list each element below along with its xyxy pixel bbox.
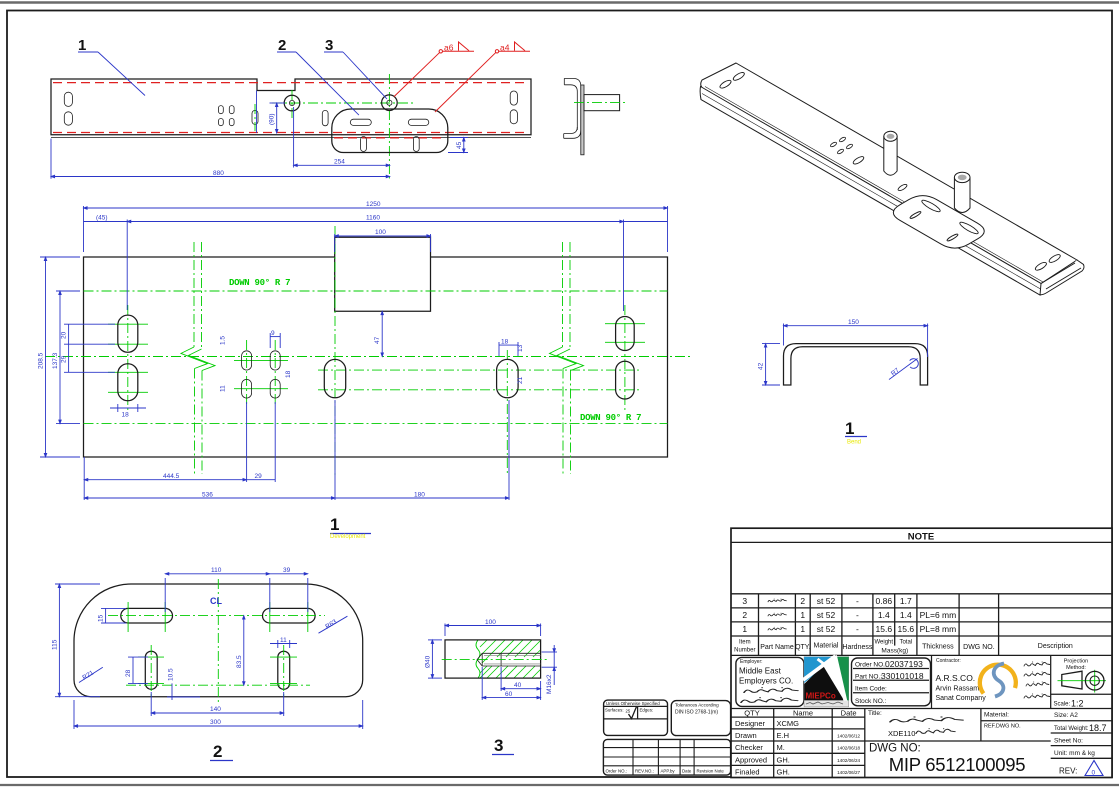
svg-text:110: 110 (211, 567, 222, 574)
svg-text:Order NO.:: Order NO.: (606, 769, 627, 774)
svg-text:536: 536 (202, 491, 213, 498)
svg-text:(90): (90) (269, 113, 276, 125)
svg-text:Unit: mm & kg: Unit: mm & kg (1054, 750, 1095, 757)
svg-text:Revision Note: Revision Note (697, 769, 725, 774)
svg-text:REV.NO.:: REV.NO.: (635, 769, 654, 774)
svg-text:1402/06/27: 1402/06/27 (837, 770, 860, 775)
svg-text:XDE110: XDE110 (888, 729, 915, 738)
svg-text:Hardness: Hardness (842, 644, 872, 651)
svg-text:Name: Name (793, 709, 813, 718)
svg-text:2: 2 (742, 610, 747, 620)
svg-text:115: 115 (51, 639, 58, 650)
svg-text:18: 18 (122, 412, 130, 419)
svg-text:1160: 1160 (366, 215, 380, 222)
svg-text:Number: Number (734, 648, 755, 654)
svg-text:Designer: Designer (735, 719, 766, 728)
svg-text:1250: 1250 (366, 201, 381, 208)
svg-text:a6: a6 (444, 43, 454, 53)
svg-text:100: 100 (485, 619, 496, 626)
svg-text:PL=8 mm: PL=8 mm (920, 624, 957, 634)
svg-text:28: 28 (125, 669, 132, 677)
svg-text:150: 150 (848, 319, 859, 326)
svg-text:18: 18 (285, 370, 292, 378)
svg-text:3: 3 (742, 596, 747, 606)
svg-text:13: 13 (517, 344, 524, 352)
svg-text:Total: Total (899, 640, 912, 646)
svg-text:Unless Otherwise Specified: Unless Otherwise Specified (606, 701, 660, 706)
svg-text:1: 1 (800, 624, 805, 634)
svg-text:-: - (856, 624, 859, 634)
svg-text:254: 254 (334, 159, 345, 166)
svg-text:Description: Description (1038, 643, 1073, 650)
svg-text:Order NO.:: Order NO.: (855, 662, 887, 669)
svg-text:Finaled: Finaled (735, 767, 760, 776)
svg-text:DOWN 90° R 7: DOWN 90° R 7 (229, 278, 290, 288)
svg-text:Surfaces:: Surfaces: (605, 708, 624, 713)
svg-text:-: - (856, 596, 859, 606)
svg-text:REV:: REV: (1059, 767, 1077, 776)
svg-text:11: 11 (280, 637, 287, 644)
svg-text:MIEPCo: MIEPCo (806, 691, 836, 700)
svg-text:140: 140 (210, 706, 221, 713)
svg-text:208.5: 208.5 (38, 352, 45, 369)
svg-text:444.5: 444.5 (163, 473, 180, 480)
svg-text:15.6: 15.6 (876, 624, 893, 634)
svg-text:100: 100 (375, 229, 386, 236)
svg-text:3: 3 (325, 37, 333, 54)
svg-text:10.5: 10.5 (168, 668, 175, 681)
svg-text:Employers CO.: Employers CO. (739, 677, 793, 686)
svg-text:1: 1 (742, 624, 747, 634)
svg-text:Weight: Weight (875, 640, 894, 646)
svg-text:CL: CL (210, 596, 222, 606)
svg-text:1: 1 (845, 419, 854, 438)
svg-text:Checker: Checker (735, 743, 763, 752)
svg-text:DWG NO:: DWG NO: (869, 743, 921, 755)
svg-text:1: 1 (800, 610, 805, 620)
svg-text:1.4: 1.4 (900, 610, 912, 620)
svg-text:Arvin Rassam: Arvin Rassam (936, 686, 980, 693)
svg-text:-: - (856, 610, 859, 620)
svg-text:APP.by: APP.by (661, 769, 676, 774)
svg-text:15.6: 15.6 (898, 624, 915, 634)
svg-text:Sheet No:: Sheet No: (1054, 738, 1083, 745)
svg-text:Total Weight:: Total Weight: (1054, 726, 1089, 732)
svg-text:1: 1 (78, 37, 86, 54)
svg-text:47: 47 (374, 336, 381, 344)
svg-text:11: 11 (219, 385, 226, 392)
svg-text:1.5: 1.5 (219, 336, 226, 345)
svg-text:39: 39 (283, 567, 291, 574)
svg-text:29: 29 (255, 473, 263, 480)
svg-text:45: 45 (456, 141, 463, 149)
svg-text:Stock NO.:: Stock NO.: (855, 698, 887, 705)
svg-text:880: 880 (213, 170, 224, 177)
svg-text:Tolerances According: Tolerances According (675, 703, 719, 708)
svg-text:Item Code:: Item Code: (855, 685, 887, 692)
svg-text:25: 25 (626, 709, 631, 714)
svg-text:Material:: Material: (984, 712, 1009, 719)
svg-text:15: 15 (98, 614, 105, 622)
svg-text:18: 18 (501, 338, 509, 345)
svg-text:Date: Date (841, 709, 857, 718)
svg-text:Middle East: Middle East (739, 667, 782, 676)
svg-text:Drawn: Drawn (735, 731, 757, 740)
svg-text:20: 20 (61, 331, 68, 339)
svg-text:PL=6 mm: PL=6 mm (920, 610, 957, 620)
svg-text:st 52: st 52 (817, 610, 836, 620)
svg-text:1402/06/12: 1402/06/12 (837, 734, 860, 739)
svg-text:Date: Date (682, 769, 692, 774)
svg-text:21: 21 (517, 376, 524, 384)
svg-text:9: 9 (271, 330, 275, 337)
svg-text:Size: A2: Size: A2 (1054, 712, 1078, 719)
svg-text:A.R.S.CO.: A.R.S.CO. (936, 673, 976, 683)
svg-text:Method:: Method: (1066, 665, 1086, 671)
svg-text:Projection: Projection (1064, 659, 1088, 665)
svg-text:1: 1 (330, 515, 339, 534)
svg-text:Bend: Bend (847, 440, 861, 446)
svg-text:1402/06/24: 1402/06/24 (837, 758, 860, 763)
svg-text:MIP 6512100095: MIP 6512100095 (889, 754, 1025, 775)
svg-text:2: 2 (213, 742, 222, 761)
svg-text:3: 3 (494, 736, 503, 755)
svg-text:E.H: E.H (777, 731, 790, 740)
svg-text:M.: M. (777, 743, 785, 752)
svg-text:Item: Item (739, 640, 751, 646)
svg-text:137.3: 137.3 (52, 352, 59, 369)
svg-text:(45): (45) (96, 215, 108, 222)
svg-text:300: 300 (210, 719, 221, 726)
svg-text:0: 0 (1092, 770, 1096, 777)
svg-text:42: 42 (758, 362, 765, 370)
svg-text:02037193: 02037193 (885, 659, 923, 669)
svg-text:Part NO.:: Part NO.: (855, 673, 882, 680)
svg-text:0.86: 0.86 (876, 596, 893, 606)
svg-text:QTY.: QTY. (795, 644, 810, 651)
svg-text:18.7: 18.7 (1089, 723, 1107, 733)
svg-text:1402/06/18: 1402/06/18 (837, 746, 860, 751)
svg-text:Material: Material (814, 643, 839, 650)
svg-text:a4: a4 (500, 43, 510, 53)
svg-text:40: 40 (514, 682, 522, 689)
svg-text:1.7: 1.7 (900, 596, 912, 606)
svg-text:180: 180 (414, 491, 425, 498)
svg-text:GH.: GH. (777, 755, 790, 764)
svg-text:st 52: st 52 (817, 624, 836, 634)
svg-text:GH.: GH. (777, 767, 790, 776)
svg-text:REF.DWG NO.: REF.DWG NO. (984, 724, 1021, 730)
svg-text:DWG NO.: DWG NO. (963, 644, 995, 651)
svg-text:Mass(kg): Mass(kg) (881, 648, 908, 655)
svg-text:Thickness: Thickness (922, 644, 954, 651)
svg-text:2: 2 (278, 37, 286, 54)
svg-text:1.4: 1.4 (878, 610, 890, 620)
svg-text:Approved: Approved (735, 755, 767, 764)
svg-text:Employer:: Employer: (740, 659, 763, 665)
svg-text:60: 60 (505, 691, 513, 698)
svg-text:83.5: 83.5 (236, 655, 243, 668)
svg-text:330101018: 330101018 (881, 671, 924, 681)
svg-text:Title:: Title: (868, 710, 882, 717)
svg-text:Development: Development (330, 534, 366, 540)
svg-text:NOTE: NOTE (908, 532, 934, 543)
svg-text:QTY: QTY (744, 709, 759, 718)
svg-text:M16x2: M16x2 (546, 674, 553, 694)
svg-text:Part Name: Part Name (760, 644, 794, 651)
svg-text:DOWN 90° R 7: DOWN 90° R 7 (580, 413, 641, 423)
svg-text:1:2: 1:2 (1071, 699, 1084, 709)
svg-text:XCMG: XCMG (777, 719, 800, 728)
svg-text:Ø40: Ø40 (424, 655, 431, 668)
svg-text:Sanat Company: Sanat Company (936, 695, 987, 702)
svg-text:Scale:: Scale: (1054, 702, 1071, 708)
svg-text:29: 29 (61, 355, 68, 363)
svg-text:Contractor:: Contractor: (936, 658, 961, 664)
svg-text:Edges:: Edges: (640, 708, 654, 713)
svg-text:DIN ISO 2768-1(m): DIN ISO 2768-1(m) (675, 710, 718, 716)
svg-text:2: 2 (800, 596, 805, 606)
svg-text:st 52: st 52 (817, 596, 836, 606)
